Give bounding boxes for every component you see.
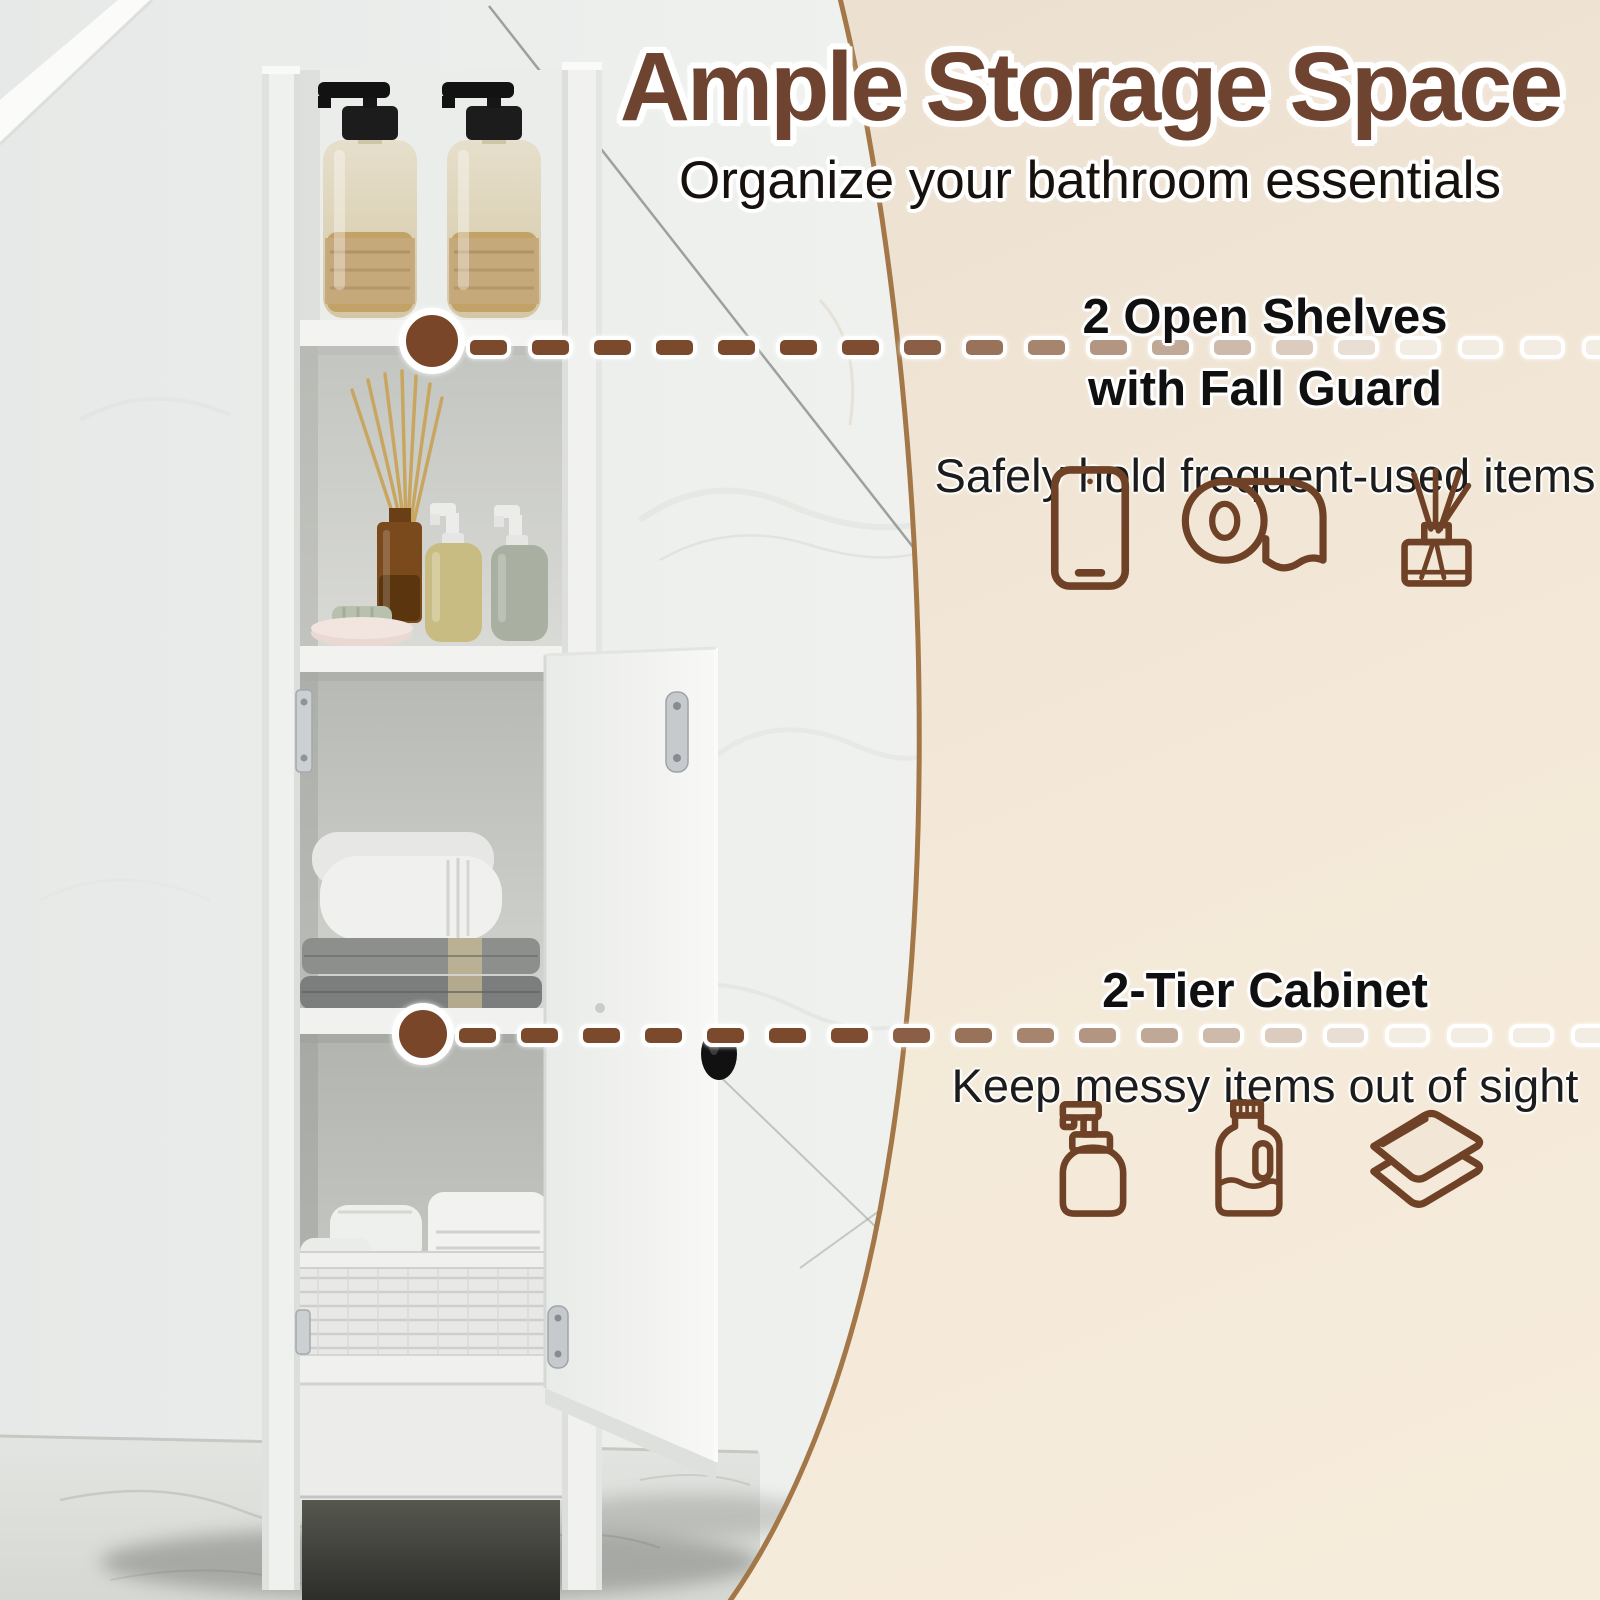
callout-dot-shelves xyxy=(399,308,465,374)
toilet-paper-icon xyxy=(1180,467,1332,589)
dash xyxy=(590,336,635,359)
dash xyxy=(827,1024,872,1047)
open-cabinet-door xyxy=(545,648,737,1480)
hinge xyxy=(296,1310,310,1354)
dash xyxy=(776,336,821,359)
soap-dispenser-icon xyxy=(1044,1093,1142,1223)
dash xyxy=(765,1024,810,1047)
wicker-basket xyxy=(292,1192,576,1372)
base-drawer xyxy=(298,1382,564,1500)
page-title: Ample Storage Space xyxy=(620,36,1560,138)
dash xyxy=(528,336,573,359)
callout-title: with Fall Guard xyxy=(1088,353,1442,425)
dash xyxy=(652,336,697,359)
header: Ample Storage Space Organize your bathro… xyxy=(620,36,1560,211)
cabinet-items-icons xyxy=(990,1088,1550,1228)
dash xyxy=(714,336,759,359)
dash xyxy=(703,1024,748,1047)
smartphone-icon xyxy=(1050,465,1130,591)
callout-title: 2 Open Shelves xyxy=(1083,281,1448,353)
base-cavity xyxy=(302,1500,560,1600)
dash xyxy=(579,1024,624,1047)
reed-diffuser-icon xyxy=(1382,465,1491,591)
dash xyxy=(455,1024,500,1047)
detergent-bottle-icon xyxy=(1200,1095,1296,1221)
shelf-items-icons xyxy=(990,462,1550,594)
dash xyxy=(466,336,511,359)
callout-dot-cabinet xyxy=(392,1003,454,1065)
page-subtitle: Organize your bathroom essentials xyxy=(679,150,1501,211)
product-infographic: Ample Storage Space Organize your bathro… xyxy=(0,0,1600,1600)
dash xyxy=(641,1024,686,1047)
dash xyxy=(517,1024,562,1047)
folded-towels-icon xyxy=(1354,1099,1496,1217)
bathroom-photo xyxy=(0,0,1600,1600)
dash xyxy=(838,336,883,359)
callout-title: 2-Tier Cabinet xyxy=(1102,955,1428,1027)
